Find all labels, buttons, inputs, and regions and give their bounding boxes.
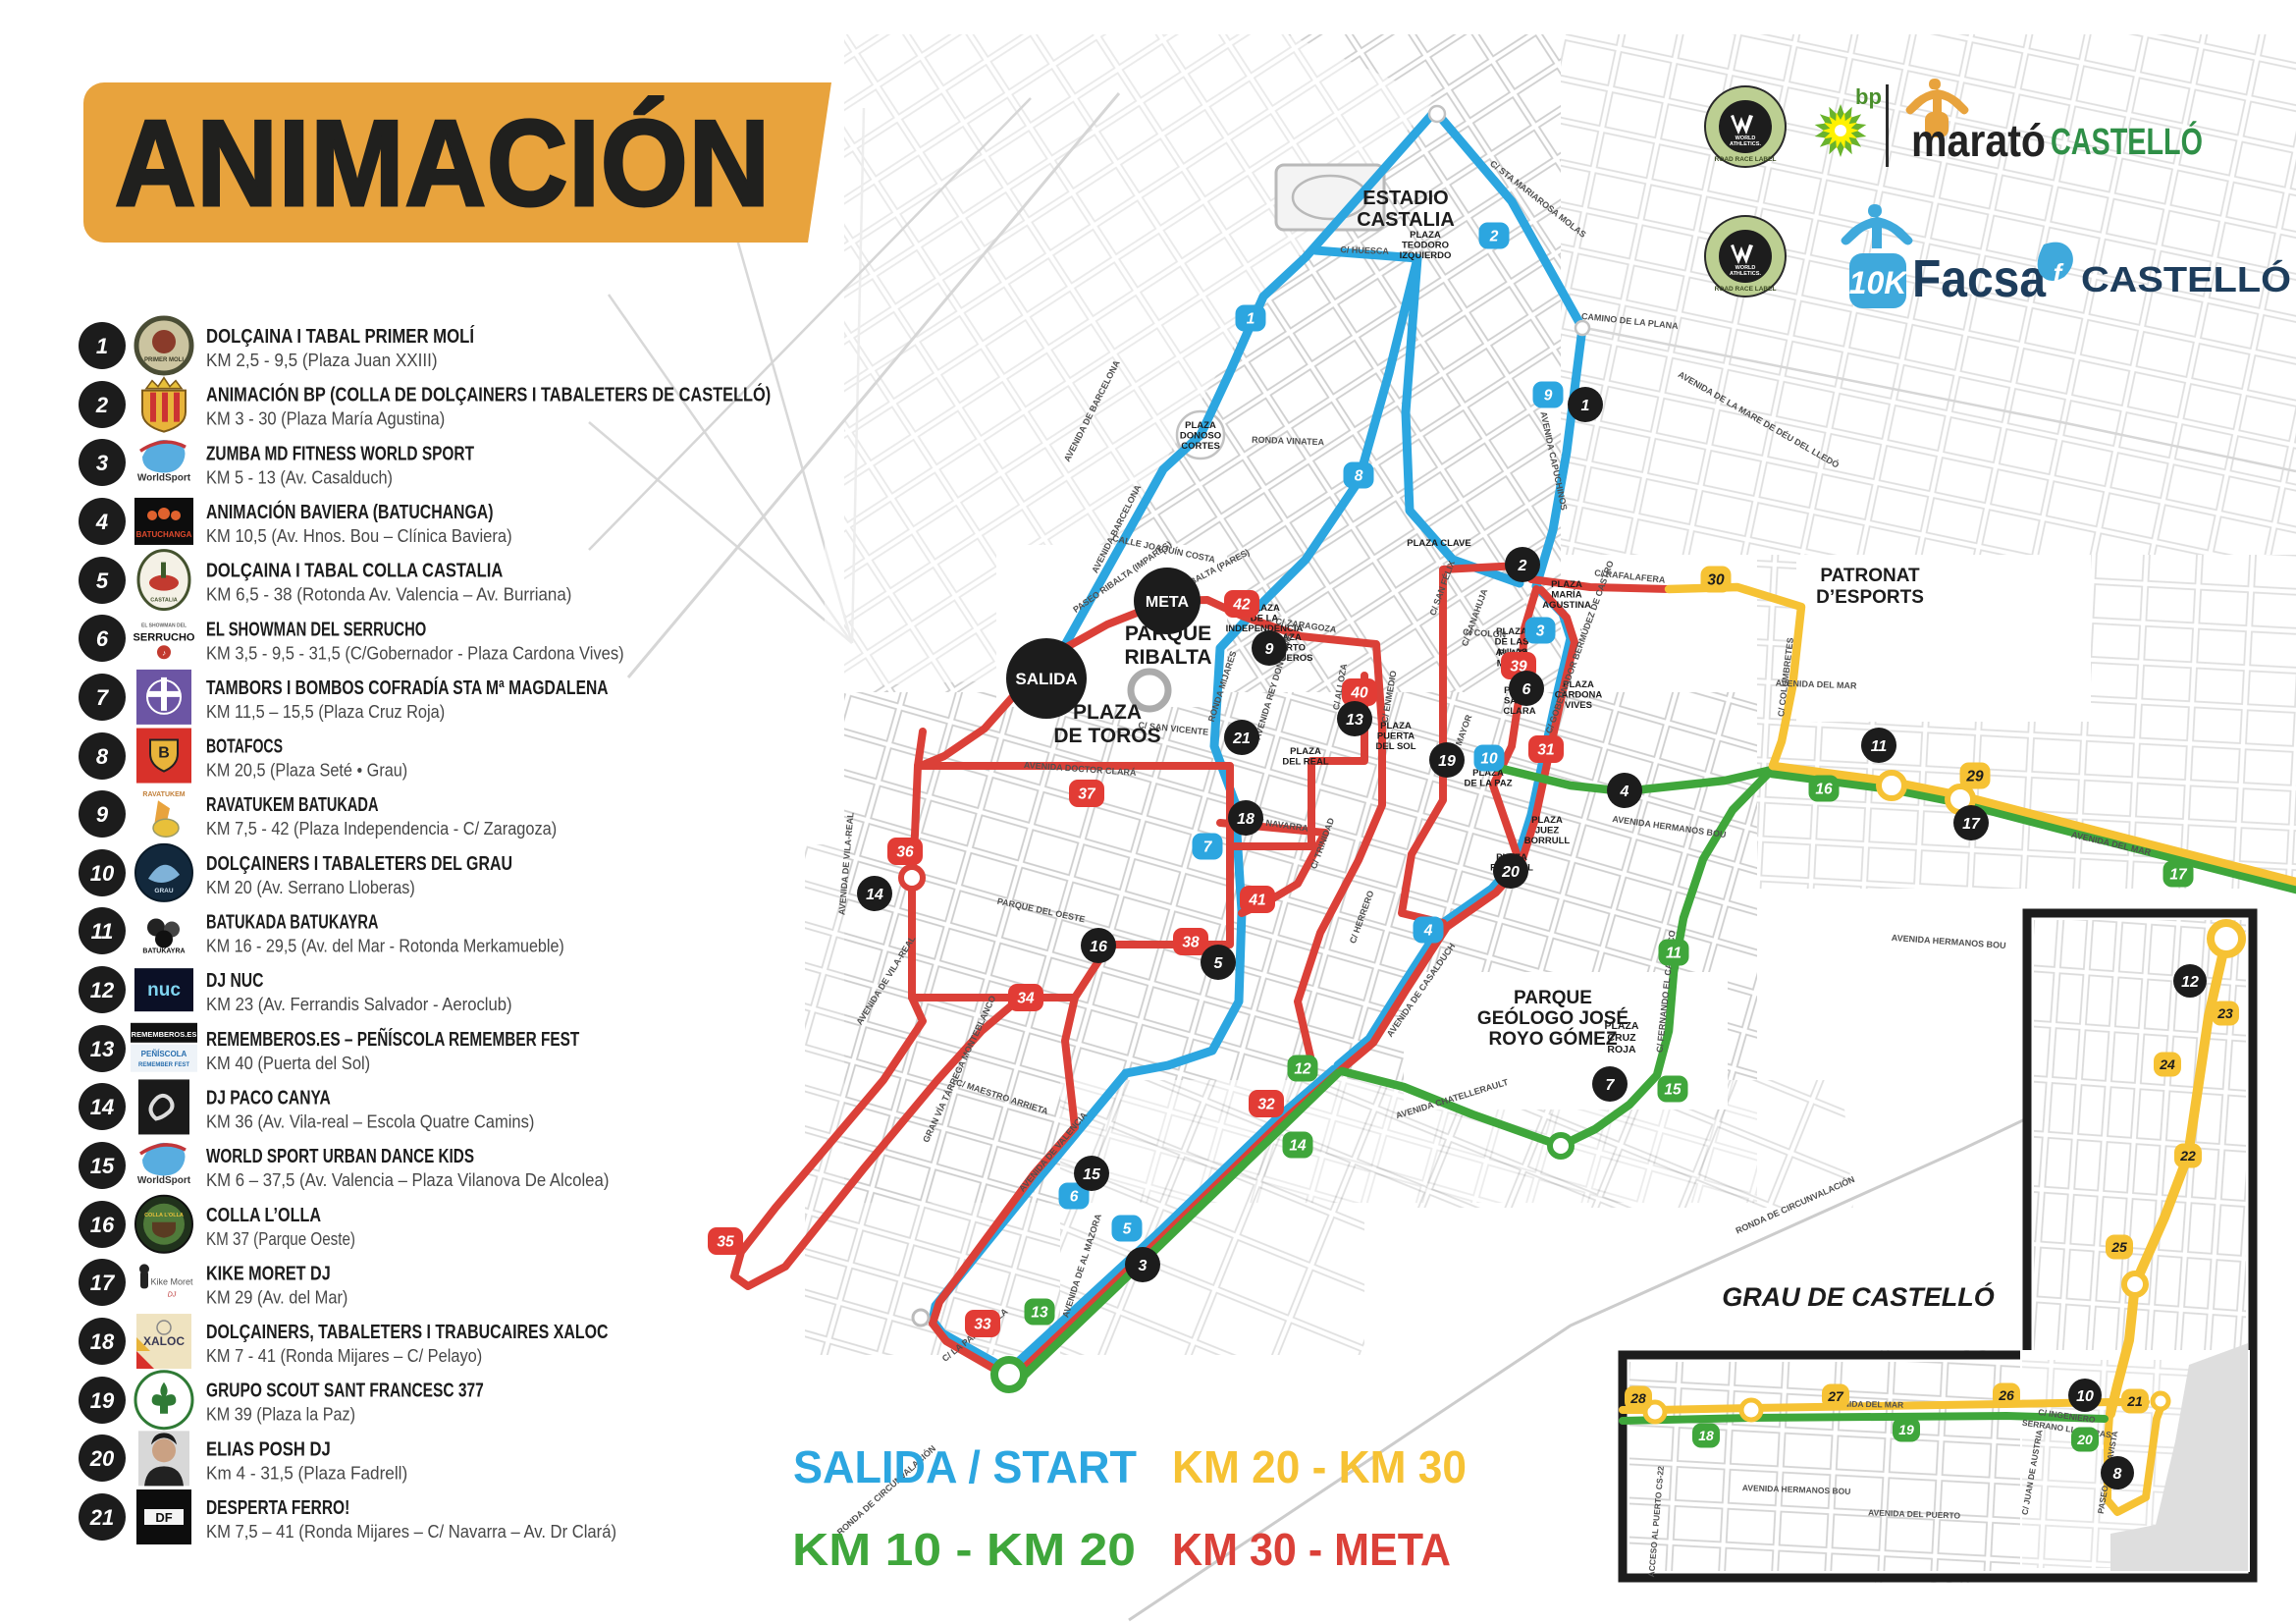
- svg-text:DEL SOL: DEL SOL: [1376, 741, 1416, 752]
- svg-text:4: 4: [1620, 784, 1629, 800]
- svg-text:4: 4: [1423, 923, 1433, 940]
- svg-text:5: 5: [96, 568, 109, 593]
- svg-text:PLAZA: PLAZA: [1531, 815, 1563, 826]
- svg-text:BATUKADA BATUKAYRA: BATUKADA BATUKAYRA: [206, 911, 379, 934]
- svg-text:REMEMBEROS.ES: REMEMBEROS.ES: [132, 1030, 197, 1039]
- svg-text:EL SHOWMAN DEL SERRUCHO: EL SHOWMAN DEL SERRUCHO: [206, 618, 426, 640]
- svg-text:GRAU DE CASTELLÓ: GRAU DE CASTELLÓ: [1722, 1281, 1995, 1312]
- svg-text:35: 35: [717, 1234, 734, 1251]
- svg-text:DJ NUC: DJ NUC: [206, 969, 264, 992]
- svg-text:PLAZA: PLAZA: [1605, 1020, 1639, 1032]
- svg-text:8: 8: [2113, 1466, 2122, 1483]
- svg-text:15: 15: [1664, 1082, 1682, 1099]
- svg-text:10: 10: [2076, 1388, 2094, 1405]
- svg-text:KM 39 (Plaza la Paz): KM 39 (Plaza la Paz): [206, 1404, 355, 1425]
- svg-text:PARQUE: PARQUE: [1514, 988, 1592, 1008]
- svg-text:29: 29: [1965, 769, 1984, 785]
- svg-text:CASTALIA: CASTALIA: [1357, 209, 1455, 231]
- svg-text:DONOSO: DONOSO: [1180, 431, 1221, 442]
- svg-text:1: 1: [96, 334, 108, 358]
- svg-text:KM 7 - 41 (Ronda Mijares – C/: KM 7 - 41 (Ronda Mijares – C/ Pelayo): [206, 1345, 482, 1366]
- svg-text:WORLD SPORT URBAN DANCE KIDS: WORLD SPORT URBAN DANCE KIDS: [206, 1145, 474, 1167]
- svg-text:TEODORO: TEODORO: [1402, 241, 1449, 251]
- svg-text:marató: marató: [1911, 115, 2046, 166]
- svg-text:DJ: DJ: [168, 1291, 177, 1298]
- svg-text:19: 19: [1438, 753, 1456, 770]
- svg-text:KM 30 - META: KM 30 - META: [1172, 1524, 1451, 1575]
- svg-text:SERRUCHO: SERRUCHO: [133, 631, 195, 643]
- svg-text:40: 40: [1350, 685, 1368, 702]
- svg-text:8: 8: [1355, 468, 1363, 485]
- svg-text:15: 15: [90, 1154, 115, 1178]
- svg-text:ROJA: ROJA: [1607, 1044, 1636, 1056]
- svg-text:7: 7: [1606, 1077, 1616, 1094]
- svg-text:28: 28: [1629, 1390, 1646, 1406]
- svg-text:ROAD RACE LABEL: ROAD RACE LABEL: [1715, 286, 1777, 293]
- svg-text:22: 22: [2179, 1148, 2196, 1164]
- svg-text:KM 6 – 37,5 (Av. Valencia – Pl: KM 6 – 37,5 (Av. Valencia – Plaza Vilano…: [206, 1169, 609, 1190]
- svg-text:10K: 10K: [1849, 265, 1910, 300]
- svg-text:17: 17: [2169, 867, 2188, 884]
- svg-text:15: 15: [1083, 1166, 1101, 1183]
- svg-text:42: 42: [1232, 597, 1251, 614]
- svg-text:SALIDA / START: SALIDA / START: [793, 1441, 1137, 1492]
- svg-text:KM 37 (Parque Oeste): KM 37 (Parque Oeste): [206, 1228, 355, 1249]
- svg-text:2: 2: [1489, 229, 1499, 245]
- svg-text:TAMBORS I BOMBOS COFRADÍA STA: TAMBORS I BOMBOS COFRADÍA STA Mª MAGDALE…: [206, 677, 609, 699]
- svg-text:DESPERTA FERRO!: DESPERTA FERRO!: [206, 1496, 349, 1519]
- svg-text:31: 31: [1537, 742, 1554, 759]
- svg-text:36: 36: [896, 844, 914, 861]
- svg-text:ROAD RACE LABEL: ROAD RACE LABEL: [1715, 156, 1777, 163]
- svg-text:19: 19: [1898, 1422, 1914, 1437]
- svg-text:♪: ♪: [162, 648, 166, 657]
- svg-text:WorldSport: WorldSport: [137, 472, 191, 483]
- svg-text:2: 2: [95, 393, 109, 417]
- svg-text:11: 11: [1871, 738, 1888, 755]
- svg-text:13: 13: [1031, 1305, 1048, 1322]
- svg-text:11: 11: [91, 919, 114, 944]
- svg-text:17: 17: [90, 1271, 116, 1295]
- svg-text:17: 17: [1962, 816, 1981, 833]
- svg-text:PUERTA: PUERTA: [1377, 731, 1415, 742]
- svg-text:37: 37: [1078, 786, 1096, 803]
- svg-text:14: 14: [90, 1095, 114, 1119]
- svg-text:VIVES: VIVES: [1565, 700, 1592, 711]
- svg-text:JUEZ: JUEZ: [1535, 826, 1559, 837]
- svg-text:21: 21: [1232, 731, 1251, 747]
- svg-text:DJ PACO CANYA: DJ PACO CANYA: [206, 1086, 331, 1109]
- svg-text:6: 6: [96, 626, 109, 651]
- svg-text:DE LA PAZ: DE LA PAZ: [1464, 779, 1512, 789]
- svg-text:14: 14: [866, 887, 883, 903]
- svg-text:6: 6: [1070, 1189, 1079, 1206]
- svg-text:CRUZ: CRUZ: [1607, 1032, 1636, 1044]
- svg-text:KM 36 (Av. Vila-real – Escola: KM 36 (Av. Vila-real – Escola Quatre Cam…: [206, 1110, 534, 1131]
- svg-text:21: 21: [89, 1505, 114, 1530]
- svg-text:KM 40 (Puerta del Sol): KM 40 (Puerta del Sol): [206, 1053, 370, 1073]
- svg-text:20: 20: [89, 1446, 115, 1471]
- svg-text:COLLA L’OLLA: COLLA L’OLLA: [144, 1213, 184, 1218]
- svg-text:Facsa: Facsa: [1912, 249, 2047, 308]
- svg-text:AGUSTINA: AGUSTINA: [1542, 600, 1591, 611]
- svg-text:KM 3 - 30 (Plaza María Agustin: KM 3 - 30 (Plaza María Agustina): [206, 408, 445, 429]
- svg-text:3: 3: [1139, 1258, 1148, 1274]
- svg-text:26: 26: [1998, 1387, 2014, 1403]
- svg-text:DOLÇAINERS I TABALETERS DEL GR: DOLÇAINERS I TABALETERS DEL GRAU: [206, 852, 512, 875]
- svg-text:PLAZA: PLAZA: [1185, 420, 1216, 431]
- svg-text:Km 4 - 31,5 (Plaza Fadrell): Km 4 - 31,5 (Plaza Fadrell): [206, 1462, 407, 1483]
- svg-text:23: 23: [2216, 1005, 2233, 1021]
- svg-text:CASTELLÓ: CASTELLÓ: [2081, 258, 2291, 299]
- svg-text:RAVATUKEM BATUKADA: RAVATUKEM BATUKADA: [206, 793, 379, 816]
- svg-text:CORTES: CORTES: [1181, 441, 1220, 452]
- svg-text:1: 1: [1247, 311, 1255, 328]
- svg-text:9: 9: [1544, 388, 1553, 405]
- svg-text:8: 8: [96, 744, 109, 769]
- svg-text:19: 19: [90, 1388, 115, 1413]
- svg-text:KM 10,5 (Av. Hnos. Bou – Clíni: KM 10,5 (Av. Hnos. Bou – Clínica Baviera…: [206, 525, 512, 546]
- svg-text:KM 7,5 - 42 (Plaza Independenc: KM 7,5 - 42 (Plaza Independencia - C/ Za…: [206, 818, 557, 839]
- svg-text:5: 5: [1123, 1221, 1132, 1238]
- svg-text:KM 3,5 - 9,5 - 31,5 (C/Goberna: KM 3,5 - 9,5 - 31,5 (C/Gobernador - Plaz…: [206, 642, 624, 663]
- svg-text:META: META: [1146, 594, 1190, 611]
- svg-text:PATRONAT: PATRONAT: [1820, 566, 1920, 586]
- svg-text:32: 32: [1257, 1097, 1275, 1113]
- svg-text:18: 18: [1237, 811, 1255, 828]
- svg-text:XALOC: XALOC: [143, 1334, 185, 1348]
- svg-text:12: 12: [1294, 1061, 1311, 1078]
- svg-text:16: 16: [1815, 782, 1833, 798]
- svg-text:PRIMER MOLI: PRIMER MOLI: [144, 357, 184, 363]
- svg-text:ANIMACIÓN BAVIERA (BATUCHANGA): ANIMACIÓN BAVIERA (BATUCHANGA): [206, 500, 494, 523]
- svg-text:C/ HUESCA: C/ HUESCA: [1340, 244, 1389, 256]
- svg-text:Kike Moret: Kike Moret: [150, 1276, 193, 1286]
- svg-text:PLAZA: PLAZA: [1073, 701, 1142, 724]
- svg-text:12: 12: [90, 978, 115, 1002]
- svg-text:24: 24: [2159, 1056, 2175, 1072]
- svg-text:GRUPO SCOUT SANT FRANCESC 377: GRUPO SCOUT SANT FRANCESC 377: [206, 1380, 484, 1402]
- svg-text:RIBALTA: RIBALTA: [1124, 646, 1211, 669]
- svg-text:25: 25: [2110, 1239, 2127, 1255]
- svg-text:EL SHOWMAN DEL: EL SHOWMAN DEL: [141, 623, 187, 628]
- svg-text:2: 2: [1518, 558, 1527, 574]
- svg-text:PEÑÍSCOLA: PEÑÍSCOLA: [141, 1050, 187, 1058]
- svg-text:KM 2,5 - 9,5 (Plaza Juan XXIII: KM 2,5 - 9,5 (Plaza Juan XXIII): [206, 350, 438, 370]
- svg-text:14: 14: [1289, 1138, 1307, 1155]
- svg-text:41: 41: [1248, 893, 1265, 909]
- svg-text:CASTALIA: CASTALIA: [150, 598, 177, 604]
- svg-text:10: 10: [1480, 751, 1498, 768]
- svg-text:CASTELLÓ: CASTELLÓ: [2051, 120, 2203, 163]
- svg-text:KM 20 (Av. Serrano Lloberas): KM 20 (Av. Serrano Lloberas): [206, 877, 415, 897]
- svg-text:13: 13: [1346, 712, 1363, 729]
- svg-text:16: 16: [1090, 939, 1107, 955]
- svg-text:DF: DF: [155, 1510, 172, 1525]
- svg-text:KM 11,5 – 15,5 (Plaza Cruz Roj: KM 11,5 – 15,5 (Plaza Cruz Roja): [206, 701, 445, 722]
- svg-text:3: 3: [96, 451, 108, 475]
- svg-text:CLARA: CLARA: [1503, 706, 1535, 717]
- svg-text:ELIAS POSH DJ: ELIAS POSH DJ: [206, 1437, 331, 1460]
- svg-text:KM 16 - 29,5 (Av. del Mar - Ro: KM 16 - 29,5 (Av. del Mar - Rotonda Merk…: [206, 936, 564, 956]
- svg-text:bp: bp: [1855, 84, 1882, 109]
- svg-text:21: 21: [2126, 1393, 2143, 1409]
- svg-text:MARÍA: MARÍA: [1551, 590, 1581, 601]
- svg-text:10: 10: [90, 861, 115, 886]
- svg-text:PLAZA: PLAZA: [1551, 579, 1582, 590]
- svg-text:1: 1: [1581, 398, 1590, 414]
- svg-text:D’ESPORTS: D’ESPORTS: [1816, 587, 1924, 608]
- svg-text:33: 33: [974, 1317, 991, 1333]
- svg-text:30: 30: [1707, 572, 1725, 589]
- svg-text:KM 20 - KM 30: KM 20 - KM 30: [1172, 1441, 1467, 1492]
- svg-text:DEL REAL: DEL REAL: [1282, 757, 1329, 768]
- svg-text:3: 3: [1536, 623, 1545, 640]
- svg-text:KM 5 - 13 (Av. Casalduch): KM 5 - 13 (Av. Casalduch): [206, 466, 393, 487]
- svg-text:DOLÇAINA I TABAL COLLA CASTALI: DOLÇAINA I TABAL COLLA CASTALIA: [206, 560, 503, 582]
- svg-text:KM 6,5 - 38 (Rotonda Av. Valen: KM 6,5 - 38 (Rotonda Av. Valencia – Av. …: [206, 584, 571, 605]
- svg-text:27: 27: [1827, 1388, 1844, 1404]
- svg-text:KM 20,5 (Plaza Seté • Grau): KM 20,5 (Plaza Seté • Grau): [206, 760, 407, 781]
- svg-text:GRAU: GRAU: [154, 888, 173, 894]
- svg-text:DOLÇAINA I TABAL PRIMER MOLÍ: DOLÇAINA I TABAL PRIMER MOLÍ: [206, 325, 475, 348]
- svg-text:REMEMBER FEST: REMEMBER FEST: [138, 1062, 189, 1068]
- svg-text:B: B: [158, 745, 170, 762]
- svg-text:ZUMBA MD FITNESS WORLD SPORT: ZUMBA MD FITNESS WORLD SPORT: [206, 442, 474, 464]
- svg-text:PLAZA CLAVE: PLAZA CLAVE: [1407, 538, 1470, 549]
- svg-text:KIKE MORET DJ: KIKE MORET DJ: [206, 1262, 331, 1284]
- svg-text:IZQUIERDO: IZQUIERDO: [1400, 250, 1452, 261]
- svg-text:BORRULL: BORRULL: [1524, 836, 1571, 846]
- svg-text:6: 6: [1522, 681, 1531, 698]
- svg-text:PLAZA: PLAZA: [1410, 230, 1441, 241]
- svg-text:nuc: nuc: [147, 980, 181, 1001]
- svg-text:20: 20: [1501, 864, 1520, 881]
- svg-text:ATHLETICS.: ATHLETICS.: [1730, 271, 1761, 277]
- svg-text:PLAZA: PLAZA: [1290, 746, 1321, 757]
- svg-text:COLLA L’OLLA: COLLA L’OLLA: [206, 1204, 321, 1226]
- svg-text:RAVATUKEM: RAVATUKEM: [142, 791, 185, 798]
- svg-text:SALIDA: SALIDA: [1015, 670, 1077, 688]
- svg-text:9: 9: [1265, 641, 1274, 658]
- svg-text:KM 10 - KM 20: KM 10 - KM 20: [792, 1524, 1136, 1575]
- svg-text:4: 4: [95, 510, 108, 534]
- svg-text:7: 7: [96, 685, 110, 710]
- svg-text:DOLÇAINERS, TABALETERS I TRABU: DOLÇAINERS, TABALETERS I TRABUCAIRES XAL…: [206, 1321, 609, 1343]
- svg-text:18: 18: [90, 1329, 115, 1354]
- svg-text:11: 11: [1666, 946, 1682, 962]
- svg-text:16: 16: [90, 1213, 115, 1237]
- svg-text:BOTAFOCS: BOTAFOCS: [206, 735, 283, 758]
- svg-text:34: 34: [1017, 991, 1035, 1007]
- svg-text:ATHLETICS.: ATHLETICS.: [1730, 141, 1761, 147]
- svg-text:BATUCHANGA: BATUCHANGA: [136, 530, 192, 539]
- svg-text:BATUKAYRA: BATUKAYRA: [142, 948, 185, 955]
- svg-text:38: 38: [1182, 935, 1200, 951]
- svg-text:KM 23 (Av. Ferrandis Salvador: KM 23 (Av. Ferrandis Salvador - Aeroclub…: [206, 994, 512, 1014]
- svg-text:KM 29 (Av. del Mar): KM 29 (Av. del Mar): [206, 1286, 347, 1307]
- svg-text:ESTADIO: ESTADIO: [1362, 188, 1448, 209]
- svg-text:REMEMBEROS.ES – PEÑÍSCOLA REME: REMEMBEROS.ES – PEÑÍSCOLA REMEMBER FEST: [206, 1028, 580, 1051]
- svg-text:18: 18: [1698, 1428, 1714, 1443]
- svg-text:5: 5: [1214, 955, 1224, 972]
- svg-text:ROYO GÓMEZ: ROYO GÓMEZ: [1489, 1028, 1618, 1050]
- svg-text:20: 20: [2076, 1432, 2093, 1447]
- svg-text:ANIMACIÓN: ANIMACIÓN: [115, 96, 771, 232]
- svg-text:ANIMACIÓN BP (COLLA DE DOLÇAIN: ANIMACIÓN BP (COLLA DE DOLÇAINERS I TABA…: [206, 383, 771, 406]
- svg-text:13: 13: [90, 1037, 114, 1061]
- svg-text:9: 9: [96, 802, 109, 827]
- svg-text:7: 7: [1203, 839, 1213, 856]
- svg-text:WorldSport: WorldSport: [137, 1175, 191, 1186]
- svg-text:KM 7,5 – 41 (Ronda Mijares – C: KM 7,5 – 41 (Ronda Mijares – C/ Navarra …: [206, 1521, 616, 1542]
- svg-text:12: 12: [2181, 974, 2199, 991]
